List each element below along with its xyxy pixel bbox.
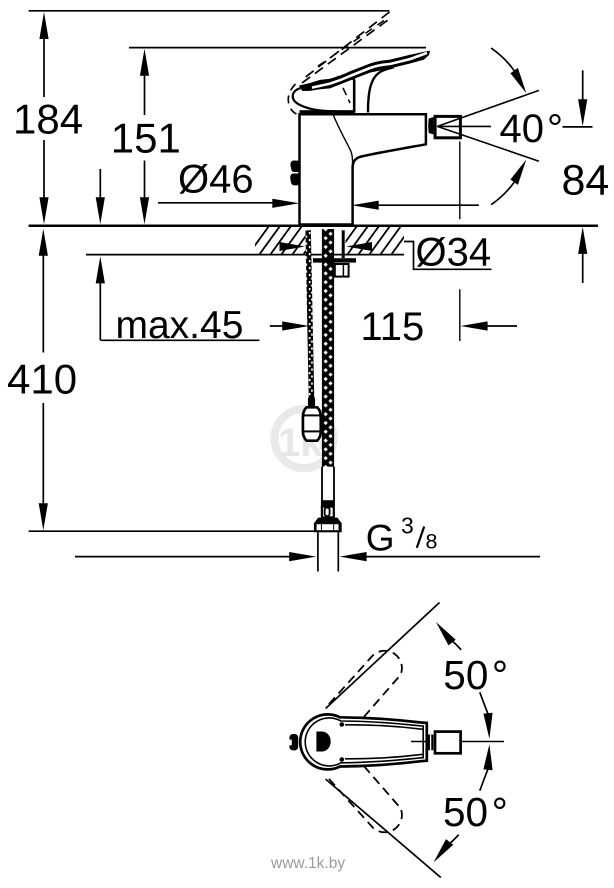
svg-text:115: 115 [361, 305, 425, 349]
svg-text:40°: 40° [500, 107, 564, 151]
svg-text:151: 151 [111, 115, 181, 162]
svg-text:8: 8 [426, 529, 438, 553]
svg-text:84: 84 [562, 157, 610, 205]
svg-text:50°: 50° [443, 789, 508, 835]
svg-text:3: 3 [401, 513, 414, 539]
svg-text:50°: 50° [443, 652, 508, 698]
svg-text:G: G [366, 518, 395, 559]
svg-text:www.1k.by: www.1k.by [270, 855, 345, 872]
svg-text:Ø34: Ø34 [416, 231, 492, 275]
svg-text:410: 410 [7, 356, 77, 403]
svg-text:Ø46: Ø46 [178, 158, 254, 202]
svg-text:184: 184 [13, 96, 83, 143]
